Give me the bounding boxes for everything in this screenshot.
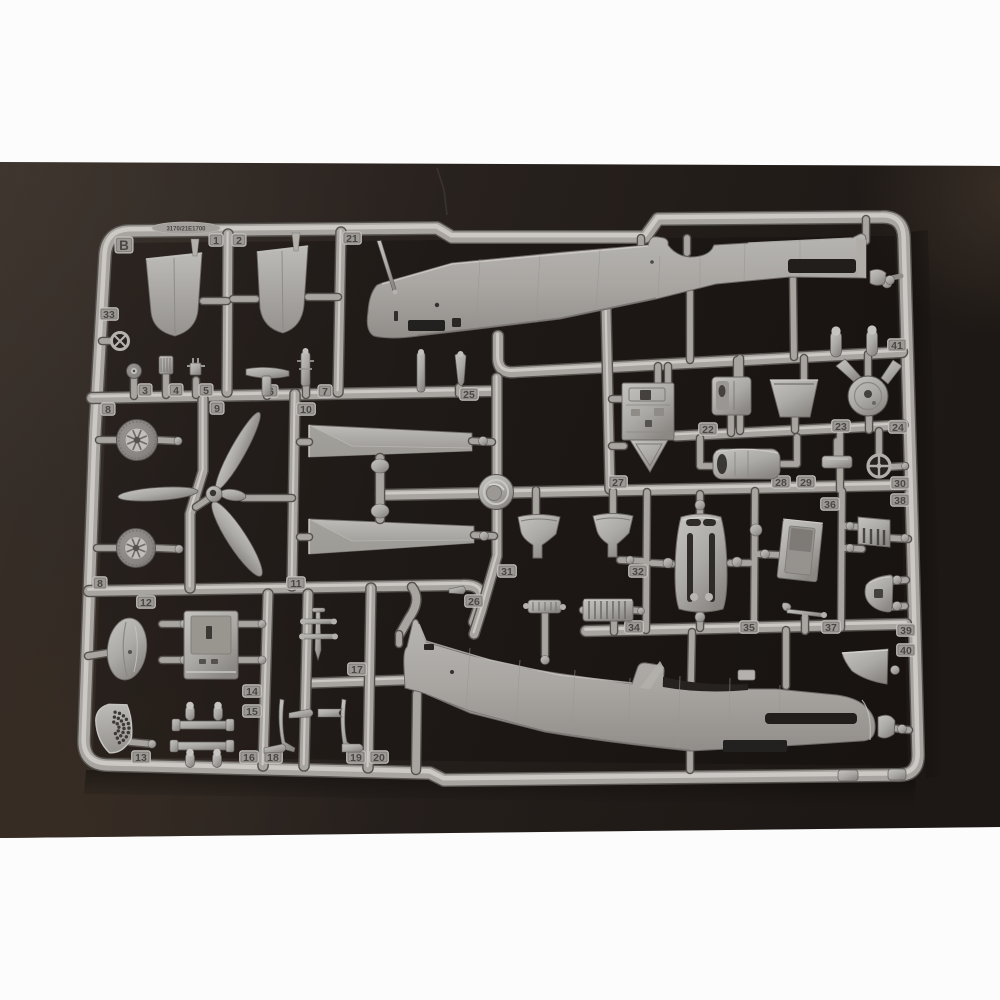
svg-text:35: 35 — [743, 622, 755, 634]
svg-text:36: 36 — [824, 499, 836, 511]
svg-text:7: 7 — [322, 386, 328, 398]
svg-text:29: 29 — [800, 477, 812, 489]
svg-text:2: 2 — [236, 235, 242, 247]
svg-text:14: 14 — [246, 686, 258, 698]
svg-text:39: 39 — [900, 625, 912, 637]
svg-text:20: 20 — [373, 752, 385, 764]
svg-text:1: 1 — [213, 235, 219, 247]
svg-text:22: 22 — [702, 424, 714, 436]
svg-text:26: 26 — [468, 596, 480, 608]
svg-text:25: 25 — [463, 389, 475, 401]
svg-text:8: 8 — [105, 404, 111, 416]
svg-text:21: 21 — [346, 233, 358, 245]
svg-text:34: 34 — [628, 622, 640, 634]
svg-text:40: 40 — [900, 645, 912, 657]
svg-text:17: 17 — [351, 664, 363, 676]
svg-text:18: 18 — [267, 752, 279, 764]
svg-text:23: 23 — [835, 421, 847, 433]
svg-text:31: 31 — [501, 566, 513, 578]
svg-text:41: 41 — [891, 340, 903, 352]
svg-text:30: 30 — [894, 478, 906, 490]
svg-text:37: 37 — [825, 622, 837, 634]
svg-text:3170/21E1700: 3170/21E1700 — [166, 227, 206, 233]
svg-text:15: 15 — [246, 706, 258, 718]
svg-text:24: 24 — [892, 422, 904, 434]
svg-text:27: 27 — [612, 477, 624, 489]
svg-text:16: 16 — [243, 752, 255, 764]
svg-text:13: 13 — [135, 752, 147, 764]
svg-text:33: 33 — [103, 309, 115, 321]
svg-text:19: 19 — [350, 752, 362, 764]
svg-text:5: 5 — [203, 385, 209, 397]
svg-text:9: 9 — [214, 403, 220, 415]
svg-text:11: 11 — [290, 578, 301, 590]
svg-text:B: B — [119, 238, 129, 253]
svg-text:10: 10 — [300, 404, 312, 416]
svg-text:38: 38 — [894, 495, 906, 507]
svg-text:3: 3 — [142, 385, 148, 397]
svg-text:12: 12 — [140, 597, 152, 609]
svg-text:8: 8 — [97, 578, 103, 590]
svg-text:4: 4 — [173, 385, 179, 397]
svg-text:32: 32 — [632, 566, 644, 578]
svg-text:28: 28 — [775, 477, 787, 489]
